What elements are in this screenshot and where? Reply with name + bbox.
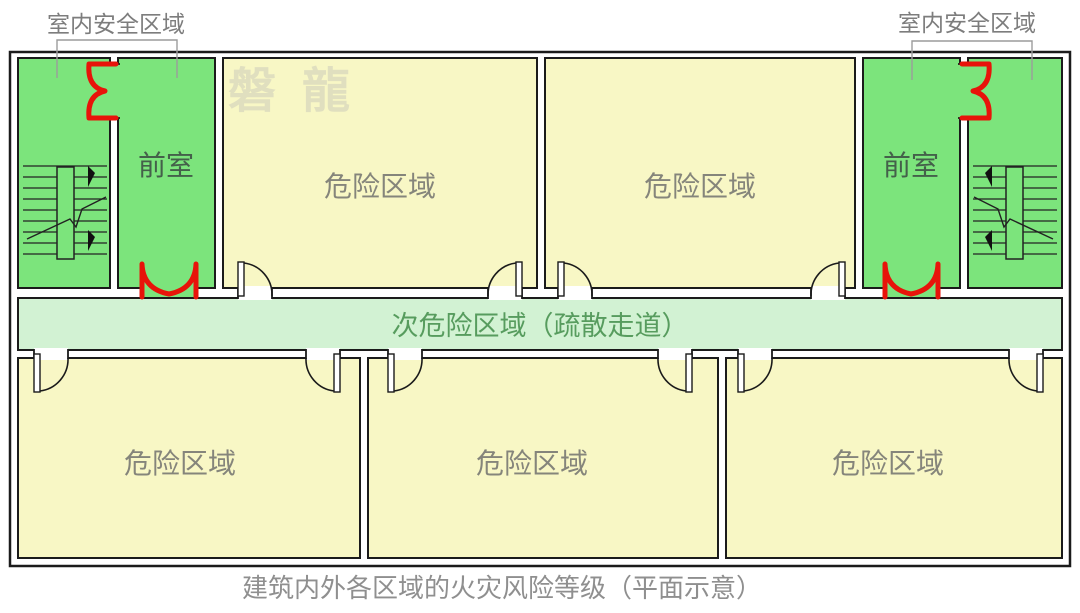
danger-room-label-2: 危险区域 [644, 170, 756, 203]
floor-plan-svg: 磐龍 [0, 0, 1080, 613]
stair-core-right [1006, 167, 1023, 259]
safe-area-label-left: 室内安全区域 [47, 12, 185, 38]
danger-room-label-4: 危险区域 [476, 447, 588, 480]
corridor-label: 次危险区域（疏散走道） [392, 311, 689, 342]
watermark-text: 磐龍 [228, 63, 376, 119]
opening-stair-right [958, 64, 970, 118]
safe-area-label-right: 室内安全区域 [898, 11, 1036, 37]
opening-stair-left [108, 64, 120, 118]
front-room-label-left: 前室 [138, 149, 194, 182]
danger-room-label-3: 危险区域 [124, 447, 236, 480]
danger-room-label-1: 危险区域 [324, 170, 436, 203]
danger-room-label-5: 危险区域 [832, 447, 944, 480]
stair-core-left [57, 167, 74, 259]
diagram-caption: 建筑内外各区域的火灾风险等级（平面示意） [242, 574, 762, 604]
floor-plan-diagram: 磐龍 [0, 0, 1080, 613]
front-room-label-right: 前室 [883, 149, 939, 182]
